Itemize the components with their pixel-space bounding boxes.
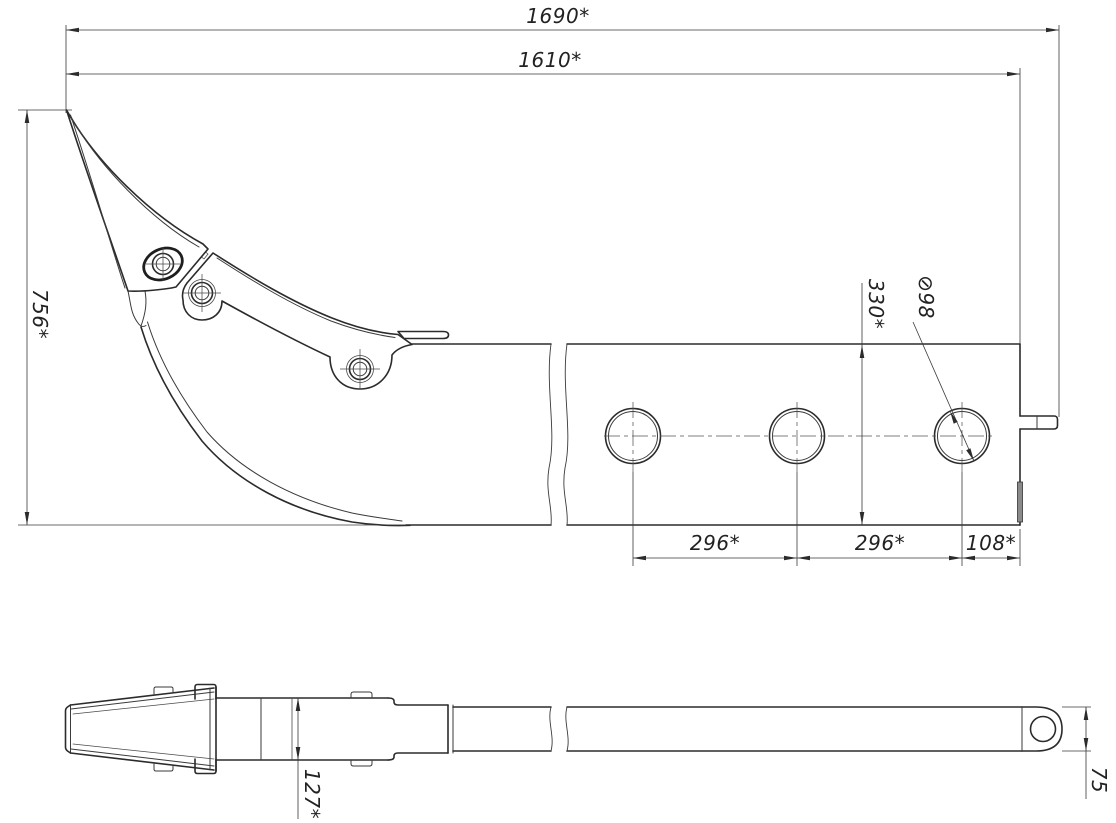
dimension-d98: ⊘98 [913,275,974,461]
dimension-hole-chain: 296* 296* 108* [633,472,1020,566]
shank-body-plan [216,692,453,766]
dim-beam-height-label: 330* [864,279,888,329]
tip-face [66,705,71,753]
break-line [548,344,552,525]
dimension-75: 75 [1062,707,1111,799]
dim-overall-length-label: 1690* [526,4,589,28]
step [388,753,448,760]
retainer-hook [128,291,146,326]
clip [351,692,372,698]
dim-shank-width-label: 127* [300,769,324,819]
end-tab [1020,416,1058,429]
bar-plan [453,707,1062,751]
dim-hole-pitch2-label: 296* [855,531,905,555]
top-view [67,110,1058,526]
break-line [550,707,552,751]
bottom-view [66,685,1063,774]
break-line [566,707,568,751]
tooth-plan [66,687,215,771]
drawing-sheet: 1690* 1610* 756* 330* [0,0,1116,823]
tooth-point [67,110,209,291]
beam-outline [406,344,1058,525]
step [388,698,448,705]
dim-body-length-label: 1610* [518,48,581,72]
dim-end-offset-label: 108* [966,531,1016,555]
wear-bar [398,332,449,339]
dim-eye-height-label: 75 [1087,767,1111,793]
adapter-bracket [183,250,449,389]
retainer-hook [141,291,146,326]
break-line [564,344,568,525]
dim-hole-diameter-label: ⊘98 [914,275,938,319]
dimension-330: 330* [860,279,888,525]
technical-drawing: 1690* 1610* 756* 330* [0,0,1116,823]
dimension-127: 127* [296,698,324,819]
eye-hole [1031,717,1056,742]
beam-holes [604,402,992,472]
clip [351,760,372,766]
dim-overall-height-label: 756* [28,289,52,339]
dim-hole-pitch1-label: 296* [690,531,740,555]
adapter-plan [195,685,216,774]
edge-insert-plate [1018,482,1023,522]
